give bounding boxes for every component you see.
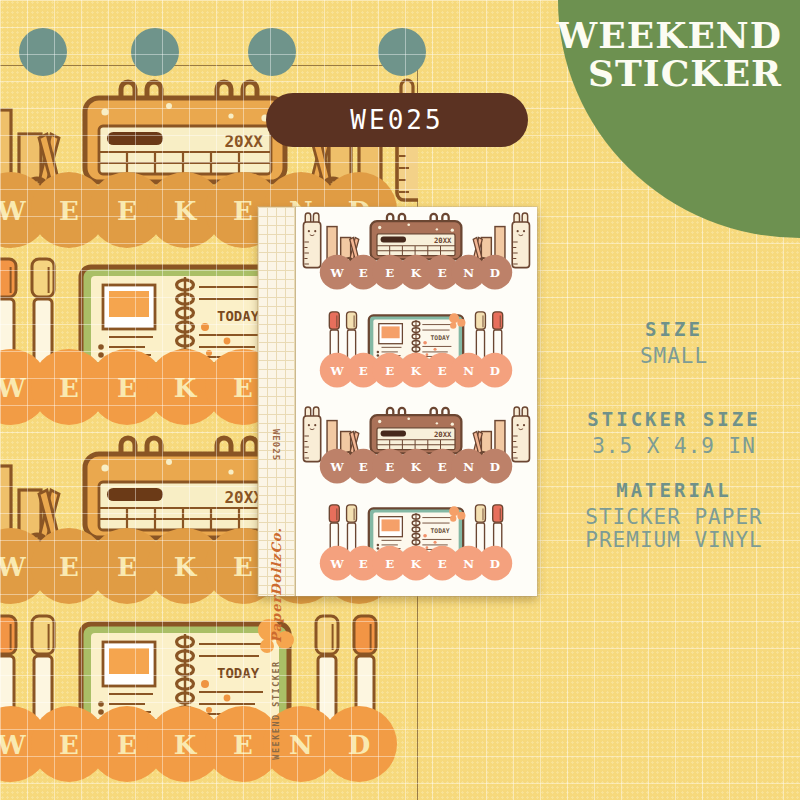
svg-text:K: K [174,373,198,403]
spec-sticker-size-label: STICKER SIZE [554,408,794,430]
svg-text:D: D [490,460,500,474]
sheet-sticker-notebook-1: TODAYWEEKEND [298,310,534,392]
product-graphic: 20XXWEEKEND TODAYWEEKEND 20XXWEEKEND TOD… [0,0,800,800]
spec-panel: SIZE SMALL STICKER SIZE 3.5 X 4.9 IN MAT… [554,0,794,800]
svg-text:W: W [329,460,344,474]
svg-text:E: E [359,557,368,571]
spec-material-value-2: PREMIUM VINYL [554,529,794,552]
svg-text:E: E [385,266,394,280]
svg-text:E: E [117,730,137,760]
binder-hole [378,28,426,76]
svg-text:W: W [329,364,344,378]
svg-text:E: E [385,557,394,571]
binder-hole [131,28,179,76]
notebook-sticker-illustration: TODAYWEEKEND [298,310,534,392]
svg-text:D: D [490,364,500,378]
svg-text:W: W [0,196,26,226]
spec-material-value-1: STICKER PAPER [554,506,794,529]
svg-text:TODAY: TODAY [431,334,450,341]
spec-size-value: SMALL [554,345,794,368]
svg-text:E: E [233,730,253,760]
svg-text:W: W [329,557,344,571]
sheet-margin: WE025 PaperDollzCo. WEEKEND STICKER [258,207,296,596]
svg-text:N: N [289,730,313,760]
sheet-sticker-calendar-1: 20XXWEEKEND [298,212,534,294]
svg-text:W: W [0,730,26,760]
svg-text:TODAY: TODAY [217,665,260,681]
svg-text:E: E [233,373,253,403]
svg-text:N: N [463,557,474,571]
sticker-sheet: WE025 PaperDollzCo. WEEKEND STICKER 20XX… [258,207,537,596]
svg-text:E: E [59,373,79,403]
left-art-notebook-2: TODAYWEEKEND [0,612,418,792]
svg-text:20XX: 20XX [224,132,263,151]
calendar-sticker-illustration: 20XXWEEKEND [298,406,534,488]
svg-text:20XX: 20XX [434,430,452,439]
spec-size: SIZE SMALL [554,318,794,368]
sheet-sticker-calendar-2: 20XXWEEKEND [298,406,534,488]
binder-hole [19,28,67,76]
svg-text:W: W [0,552,26,582]
svg-text:E: E [438,557,447,571]
notebook-sticker-illustration: TODAYWEEKEND [0,612,418,792]
svg-text:E: E [59,730,79,760]
svg-text:K: K [174,196,198,226]
svg-text:K: K [174,730,198,760]
svg-text:N: N [463,460,474,474]
svg-text:E: E [438,460,447,474]
svg-text:K: K [411,460,422,474]
binder-hole [248,28,296,76]
sheet-sticker-notebook-2: TODAYWEEKEND [298,503,534,585]
svg-text:20XX: 20XX [434,236,452,245]
svg-text:N: N [463,266,474,280]
svg-text:K: K [174,552,198,582]
svg-text:E: E [438,364,447,378]
brand-logo-text: PaperDollzCo. [269,527,284,643]
svg-text:E: E [117,552,137,582]
svg-text:TODAY: TODAY [431,527,450,534]
calendar-sticker-illustration: 20XXWEEKEND [298,212,534,294]
product-code-badge: WE025 [266,93,528,147]
svg-text:E: E [59,196,79,226]
svg-text:E: E [117,373,137,403]
svg-text:E: E [359,364,368,378]
svg-text:TODAY: TODAY [217,308,260,324]
spec-sticker-size: STICKER SIZE 3.5 X 4.9 IN [554,408,794,458]
svg-text:E: E [117,196,137,226]
svg-text:D: D [490,557,500,571]
svg-text:D: D [490,266,500,280]
svg-text:W: W [0,373,26,403]
svg-text:K: K [411,364,422,378]
spec-material: MATERIAL STICKER PAPER PREMIUM VINYL [554,479,794,552]
svg-text:E: E [385,364,394,378]
spec-material-label: MATERIAL [554,479,794,501]
svg-text:E: E [359,266,368,280]
spec-size-label: SIZE [554,318,794,340]
sheet-margin-code: WE025 [271,429,281,461]
sheet-margin-label: WEEKEND STICKER [271,660,281,759]
svg-text:D: D [348,730,371,760]
svg-text:E: E [438,266,447,280]
svg-text:E: E [385,460,394,474]
svg-text:N: N [463,364,474,378]
svg-text:K: K [411,557,422,571]
product-code: WE025 [350,105,443,135]
svg-text:E: E [233,196,253,226]
svg-text:E: E [233,552,253,582]
svg-text:E: E [59,552,79,582]
spec-sticker-size-value: 3.5 X 4.9 IN [554,435,794,458]
svg-text:W: W [329,266,344,280]
svg-text:K: K [411,266,422,280]
notebook-sticker-illustration: TODAYWEEKEND [298,503,534,585]
svg-text:E: E [359,460,368,474]
